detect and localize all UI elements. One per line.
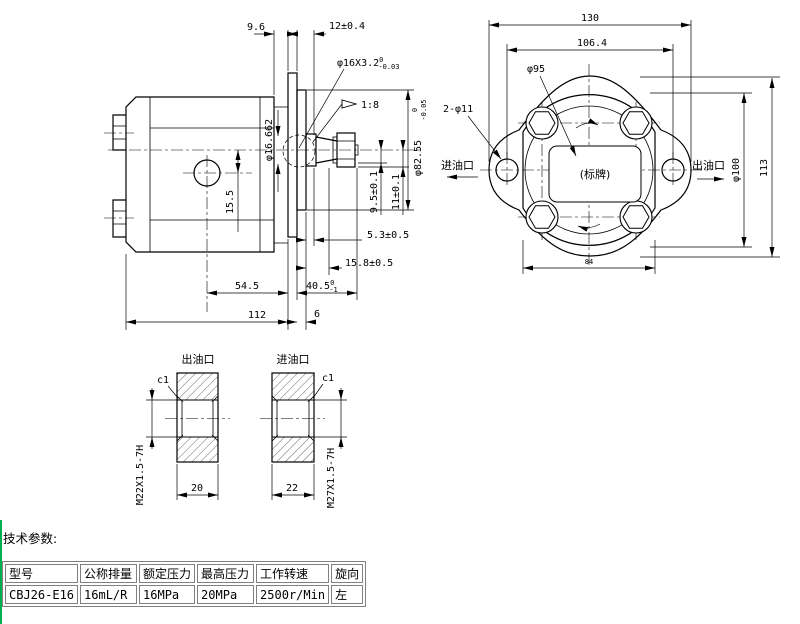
spigot-tol-upper: 0: [411, 108, 419, 112]
value-speed: 2500r/Min: [256, 585, 329, 604]
dim-112: 112: [248, 310, 266, 321]
header-rated-pressure: 额定压力: [139, 564, 195, 583]
taper-gauge-dia: φ16.662: [264, 119, 275, 161]
value-displacement: 16mL/R: [80, 585, 137, 604]
spigot-tol-lower: -0.05: [420, 99, 428, 120]
dim-15-5: 15.5: [225, 190, 236, 214]
dim-106-4: 106.4: [577, 38, 607, 49]
dim-113: 113: [759, 159, 770, 177]
dim-54-5: 54.5: [235, 281, 259, 292]
dia-100-label: φ100: [731, 158, 742, 182]
taper-symbol-icon: [342, 100, 356, 108]
inlet-thread-label: M27X1.5-7H: [326, 448, 337, 508]
value-model: CBJ26-E16: [5, 585, 78, 604]
technical-drawing: 9.6 12±0.4 φ16X3.20-0.03 1:8 φ16.662 15.…: [0, 0, 800, 558]
dim-11: 11±0.1: [391, 174, 402, 210]
outlet-section: 出油口 c1 M22X1.5-7H 20: [135, 352, 230, 505]
dim-9-5: 9.5±0.1: [369, 171, 380, 213]
tech-params-heading: 技术参数:: [3, 528, 57, 547]
port-sections: 出油口 c1 M22X1.5-7H 20 进油口: [135, 352, 347, 508]
table-value-row: CBJ26-E16 16mL/R 16MPa 20MPa 2500r/Min 左: [5, 585, 363, 604]
header-displacement: 公称排量: [80, 564, 137, 583]
inlet-section: 进油口 c1 M27X1.5-7H 22: [260, 352, 347, 508]
outlet-label: 出油口: [692, 158, 725, 172]
inlet-section-title: 进油口: [277, 352, 310, 366]
inlet-bore-width: 22: [286, 483, 298, 494]
mount-holes-label: 2-φ11: [443, 104, 473, 115]
header-rotation: 旋向: [331, 564, 363, 583]
side-view: 9.6 12±0.4 φ16X3.20-0.03 1:8 φ16.662 15.…: [104, 21, 428, 330]
table-header-row: 型号 公称排量 额定压力 最高压力 工作转速 旋向: [5, 564, 363, 583]
dim-15-8: 15.8±0.5: [345, 258, 393, 269]
inlet-label: 进油口: [441, 158, 474, 172]
value-rated-pressure: 16MPa: [139, 585, 195, 604]
header-speed: 工作转速: [256, 564, 329, 583]
dim-40-5: 40.50-1: [306, 279, 338, 294]
dim-5-3: 5.3±0.5: [367, 230, 409, 241]
inlet-chamfer-label: c1: [322, 373, 334, 384]
dim-9-6: 9.6: [247, 22, 265, 33]
header-model: 型号: [5, 564, 78, 583]
value-rotation: 左: [331, 585, 363, 604]
value-max-pressure: 20MPa: [197, 585, 254, 604]
dim-12: 12±0.4: [329, 21, 365, 32]
dim-84: 84: [585, 258, 593, 266]
tech-params-table: 型号 公称排量 额定压力 最高压力 工作转速 旋向 CBJ26-E16 16mL…: [2, 561, 366, 607]
shaft-thread-label: φ16X3.20-0.03: [337, 56, 399, 71]
outlet-section-title: 出油口: [182, 352, 215, 366]
taper-ratio: 1:8: [361, 100, 379, 111]
nameplate-label: (标牌): [580, 167, 611, 181]
outlet-chamfer-label: c1: [157, 375, 169, 386]
dia-95-label: φ95: [527, 64, 545, 75]
pump-drawing-page: 9.6 12±0.4 φ16X3.20-0.03 1:8 φ16.662 15.…: [0, 0, 800, 624]
front-view: (标牌) 130 106.4 2-φ11 φ95 进油口 出油口 φ100 11…: [441, 13, 780, 274]
rotation-arrow-top-icon: [576, 123, 598, 128]
outlet-bore-width: 20: [191, 483, 203, 494]
outlet-thread-label: M22X1.5-7H: [135, 445, 146, 505]
dim-130: 130: [581, 13, 599, 24]
header-max-pressure: 最高压力: [197, 564, 254, 583]
spigot-dia: φ82.55: [413, 140, 424, 176]
dim-6: 6: [314, 309, 320, 320]
